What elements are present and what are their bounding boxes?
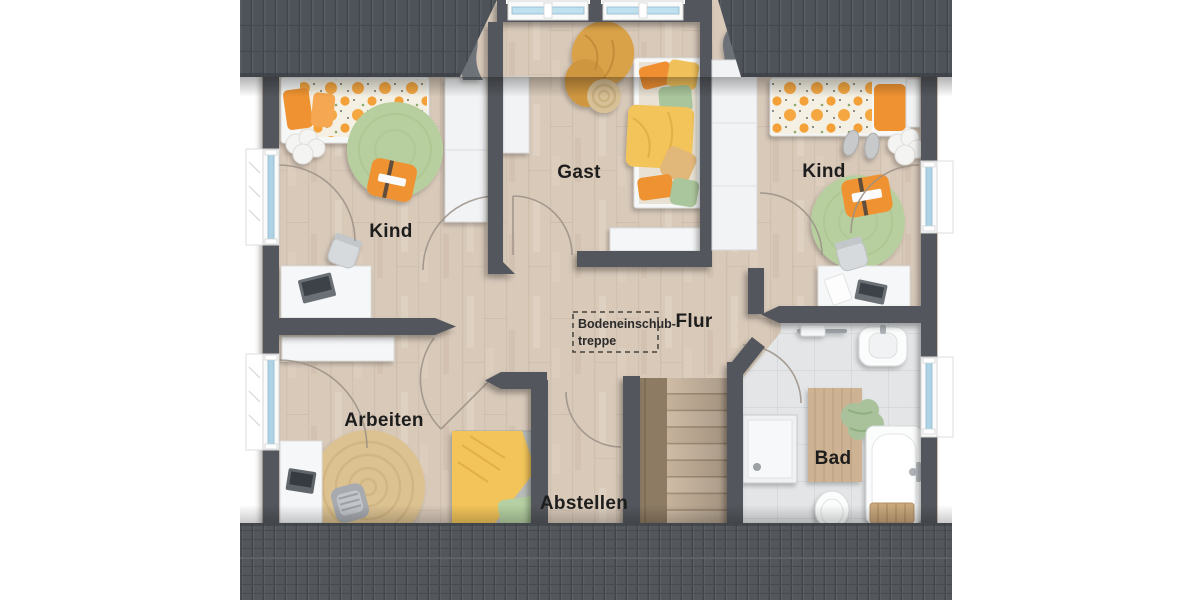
room-label-gast: Gast bbox=[557, 162, 601, 183]
pillow bbox=[669, 177, 700, 208]
attic-hatch-line1: Bodeneinschub- bbox=[578, 317, 676, 331]
window-gast-1 bbox=[506, 0, 590, 20]
window-kind-right bbox=[921, 161, 953, 233]
roof-overhang-shadow bbox=[240, 77, 952, 97]
roof-gutter-line bbox=[240, 557, 952, 559]
wall-kindleft-arbeiten bbox=[263, 318, 435, 335]
faucet bbox=[909, 468, 917, 476]
shower-drain bbox=[753, 463, 761, 471]
room-label-bad: Bad bbox=[815, 448, 852, 469]
staircase bbox=[640, 378, 727, 527]
roof-top-left bbox=[240, 0, 497, 77]
sink bbox=[859, 325, 907, 366]
attic-hatch-line2: treppe bbox=[578, 334, 616, 348]
room-label-flur: Flur bbox=[675, 311, 712, 332]
wall-kindleft-gast bbox=[488, 22, 503, 262]
pillow bbox=[637, 174, 675, 202]
floor-plan-canvas: Kind Gast Kind Flur Arbeiten Abstellen B… bbox=[0, 0, 1200, 600]
wall-kindright-bad bbox=[779, 306, 921, 323]
pillow bbox=[310, 92, 335, 128]
roof-bottom bbox=[240, 523, 952, 600]
roof-top-right bbox=[718, 0, 952, 77]
sideboard bbox=[282, 337, 394, 361]
window-kind-left bbox=[246, 149, 279, 245]
floor-plan: Kind Gast Kind Flur Arbeiten Abstellen B… bbox=[0, 0, 1200, 600]
wall-kindright-west bbox=[748, 268, 764, 314]
faucet bbox=[880, 325, 886, 334]
room-label-kind-left: Kind bbox=[369, 221, 412, 242]
room-label-kind-right: Kind bbox=[802, 161, 845, 182]
laptop bbox=[285, 468, 316, 494]
towel bbox=[801, 325, 825, 336]
wall-outer-left bbox=[263, 70, 279, 527]
sideboard bbox=[610, 228, 709, 251]
room-label-arbeiten: Arbeiten bbox=[344, 410, 423, 431]
window-arbeiten bbox=[246, 354, 279, 450]
wall-stairs-bad bbox=[727, 362, 743, 527]
wall-gast-bottom bbox=[577, 251, 712, 267]
wall-gast-closet bbox=[700, 22, 712, 267]
window-bad bbox=[921, 357, 953, 437]
wall-outer-right bbox=[921, 70, 937, 527]
window-gast-2 bbox=[601, 0, 685, 20]
